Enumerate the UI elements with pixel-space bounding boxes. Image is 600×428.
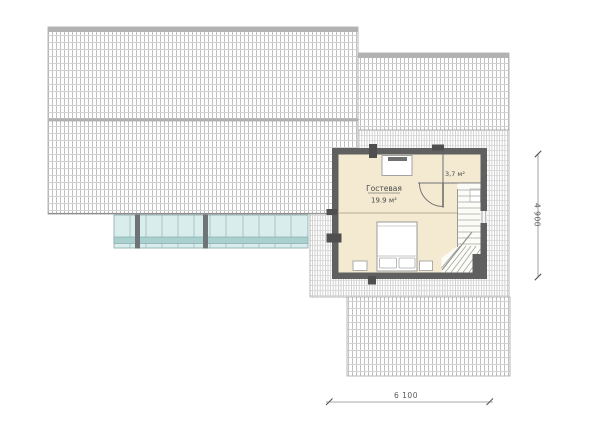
nightstand-right — [420, 261, 433, 271]
skylight-post-left — [135, 215, 140, 249]
skylight-gutter-stripe — [114, 237, 308, 244]
nightstand-left — [353, 261, 367, 271]
small-room-area-label: 3,7 м² — [445, 170, 465, 178]
vent-marker-top — [432, 145, 444, 151]
bed-pillow-left — [380, 258, 397, 268]
wardrobe-detail — [388, 157, 407, 161]
floor-plan-canvas: Гостевая 19.9 м² 3,7 м² 6 100 4 900 — [0, 0, 600, 428]
column-marker-left-2 — [327, 234, 342, 243]
guest-room-area-label: 19.9 м² — [371, 197, 397, 205]
left-roof — [48, 27, 358, 214]
stair-post — [473, 254, 481, 273]
wall-bottom — [332, 273, 487, 280]
stair-landing — [470, 189, 481, 202]
floor-plan-svg: Гостевая 19.9 м² 3,7 м² 6 100 4 900 — [0, 0, 600, 428]
right-wall-window — [481, 211, 488, 223]
bed-pillow-right — [399, 258, 415, 268]
column-marker-left-1 — [327, 209, 338, 215]
chimney-marker-top — [369, 144, 377, 158]
right-roof-upper — [358, 53, 509, 130]
dimension-bottom-label: 6 100 — [394, 391, 418, 400]
guest-room-name-label: Гостевая — [366, 184, 402, 193]
dimension-right-label: 4 900 — [533, 203, 542, 227]
guest-room: Гостевая 19.9 м² 3,7 м² — [327, 144, 488, 285]
chimney-marker-bottom — [368, 276, 376, 285]
skylight-post-right — [203, 215, 208, 249]
skylight-band — [114, 215, 308, 249]
wall-top — [332, 148, 487, 155]
wardrobe — [382, 156, 412, 176]
right-roof-lower — [347, 297, 510, 376]
bed — [377, 222, 417, 271]
left-roof-ridge-cap — [48, 27, 358, 32]
right-roof-ridge-cap — [358, 53, 509, 58]
